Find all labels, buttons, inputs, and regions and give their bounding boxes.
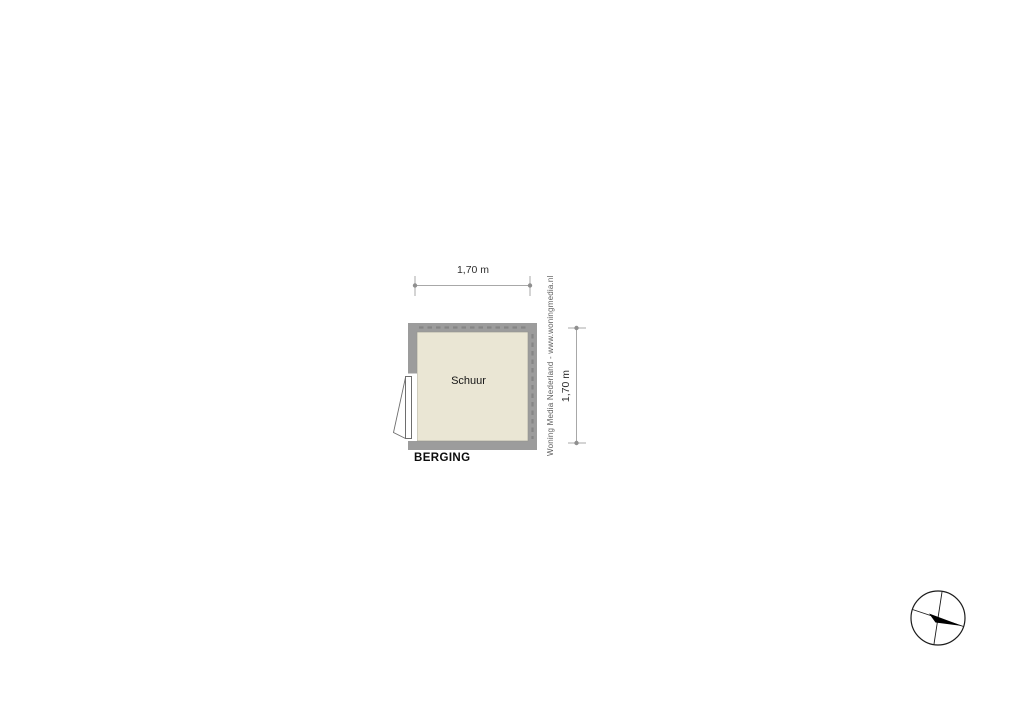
compass-rose-icon — [911, 591, 965, 645]
watermark-text: Woning Media Nederland - www.woningmedia… — [546, 285, 555, 456]
door-swing — [394, 378, 406, 439]
room-name-label: Schuur — [418, 375, 519, 387]
door — [394, 374, 418, 442]
width-dimension-label: 1,70 m — [433, 264, 513, 276]
plan-title-label: BERGING — [414, 452, 470, 464]
door-leaf — [406, 377, 412, 439]
dimension-width-line — [413, 276, 532, 296]
floorplan-page: 1,70 m Schuur BERGING 1,70 m Woning Medi… — [0, 0, 1024, 717]
height-dimension-label: 1,70 m — [560, 356, 572, 416]
floorplan-drawing — [0, 0, 1024, 717]
